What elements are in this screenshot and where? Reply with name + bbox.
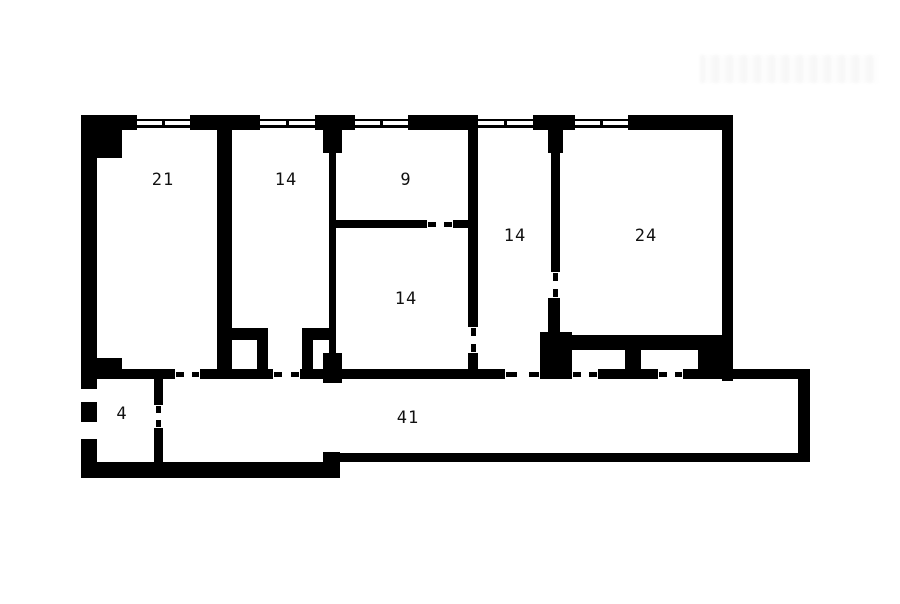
room-label-9-2: 9: [400, 170, 411, 190]
corridor-pier-a: [540, 332, 572, 379]
door-room9-tick-2: [444, 222, 452, 227]
closet-b-top-wall: [302, 328, 336, 340]
closet-b-left-wall: [302, 340, 313, 369]
room24-bottom-thick-wall: [560, 335, 733, 350]
corridor-top-wall-seg4: [342, 369, 505, 379]
wall-room14-room9-pier-top: [323, 130, 342, 153]
exterior-bottom-step: [323, 452, 340, 478]
room-label-14-3: 14: [504, 226, 526, 246]
wall-room14r-room24-lower: [548, 298, 560, 335]
door-room24-tick-1: [553, 273, 558, 281]
exterior-left-wall-upper: [81, 130, 97, 386]
closet-a-top-wall: [232, 328, 268, 340]
entry-opening-upper-line-bottom: [81, 402, 97, 405]
wall-room9-room14r: [468, 130, 478, 327]
room-label-14-1: 14: [275, 170, 297, 190]
door-closet24-b-tick-1: [659, 372, 667, 377]
door-room4-tick-2: [156, 420, 161, 427]
entry-opening-lower-line-top: [81, 419, 97, 422]
window-room14-mullion: [286, 119, 289, 128]
door-room14-left-tick-2: [291, 372, 299, 377]
exterior-top-wall-seg5: [533, 115, 575, 130]
wall-room14r-room24: [551, 153, 560, 272]
exterior-bottom-wall-right: [340, 453, 810, 462]
exterior-top-wall-seg6: [628, 115, 733, 130]
corridor-top-wall-seg3: [300, 369, 342, 379]
door-room24-tick-2: [553, 289, 558, 297]
room-label-24-4: 24: [635, 226, 657, 246]
wall-room21-room14: [217, 130, 232, 369]
door-closet24-b-tick-2: [675, 372, 683, 377]
door-closet24-a-tick-1: [573, 372, 581, 377]
exterior-top-wall-seg2: [190, 115, 260, 130]
corridor-top-wall-seg2: [200, 369, 273, 379]
room4-right-wall-lower: [154, 428, 163, 462]
room-label-41-7: 41: [397, 408, 419, 428]
room21-corner-step: [97, 130, 122, 158]
window-room9-mullion: [380, 119, 383, 128]
door-room14-left-tick-1: [274, 372, 282, 377]
wall-room14r-room24-pier-top: [548, 130, 563, 153]
door-room21-tick-2: [192, 372, 200, 377]
window-room24-mullion: [600, 119, 603, 128]
room9-bottom-wall-a: [336, 220, 427, 228]
entry-opening-lower-line-bottom: [81, 439, 97, 442]
door-room14-right-tick-2: [529, 372, 540, 377]
door-room14-14-tick-2: [471, 344, 476, 352]
room-label-21-0: 21: [152, 170, 174, 190]
corridor-top-wall-seg5: [598, 369, 658, 379]
exterior-bottom-wall-left: [81, 462, 340, 478]
room4-top-pier: [97, 358, 122, 369]
exterior-top-wall-seg3: [315, 115, 355, 130]
door-room14-14-tick-1: [471, 328, 476, 336]
wall-room14-room9: [329, 153, 336, 353]
floor-plan: 21149142414441: [0, 0, 900, 604]
room-label-4-6: 4: [116, 404, 127, 424]
entry-opening-upper-line-top: [81, 386, 97, 389]
window-room21-mullion: [162, 119, 165, 128]
corridor-top-wall-seg6: [683, 369, 810, 379]
exterior-left-wall-mid: [81, 404, 97, 419]
wall-room9-room14r-stub: [468, 353, 478, 369]
door-closet24-a-tick-2: [589, 372, 597, 377]
corridor-top-wall-seg1: [97, 369, 175, 379]
window-room14r-mullion: [504, 119, 507, 128]
door-room21-tick-1: [176, 372, 184, 377]
room4-right-wall-upper: [154, 379, 163, 405]
exterior-top-wall-seg1: [81, 115, 137, 130]
watermark: [700, 55, 878, 83]
room9-bottom-wall-b: [453, 220, 468, 228]
door-room4-tick-1: [156, 406, 161, 413]
closet-a-right-wall: [257, 340, 268, 369]
door-room9-tick-1: [428, 222, 436, 227]
room-label-14-5: 14: [395, 289, 417, 309]
exterior-top-wall-seg4: [408, 115, 478, 130]
door-room14-right-tick-1: [506, 372, 517, 377]
exterior-right-wall-corridor: [798, 373, 810, 462]
